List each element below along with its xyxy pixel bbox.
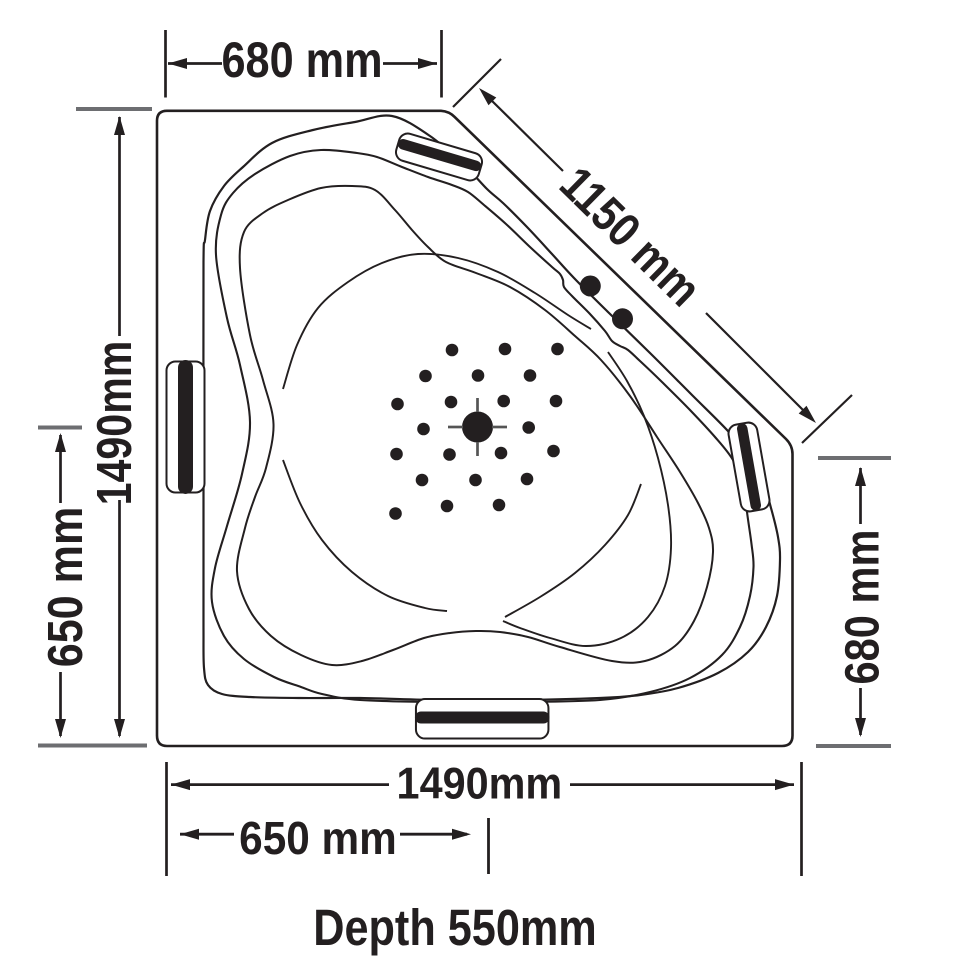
svg-text:680 mm: 680 mm [221,32,382,88]
svg-text:1490mm: 1490mm [397,759,563,809]
svg-text:650 mm: 650 mm [37,507,92,668]
svg-text:680 mm: 680 mm [835,530,889,685]
svg-text:1490mm: 1490mm [87,341,142,506]
svg-text:Depth 550mm: Depth 550mm [313,900,597,957]
svg-text:650 mm: 650 mm [239,813,397,864]
